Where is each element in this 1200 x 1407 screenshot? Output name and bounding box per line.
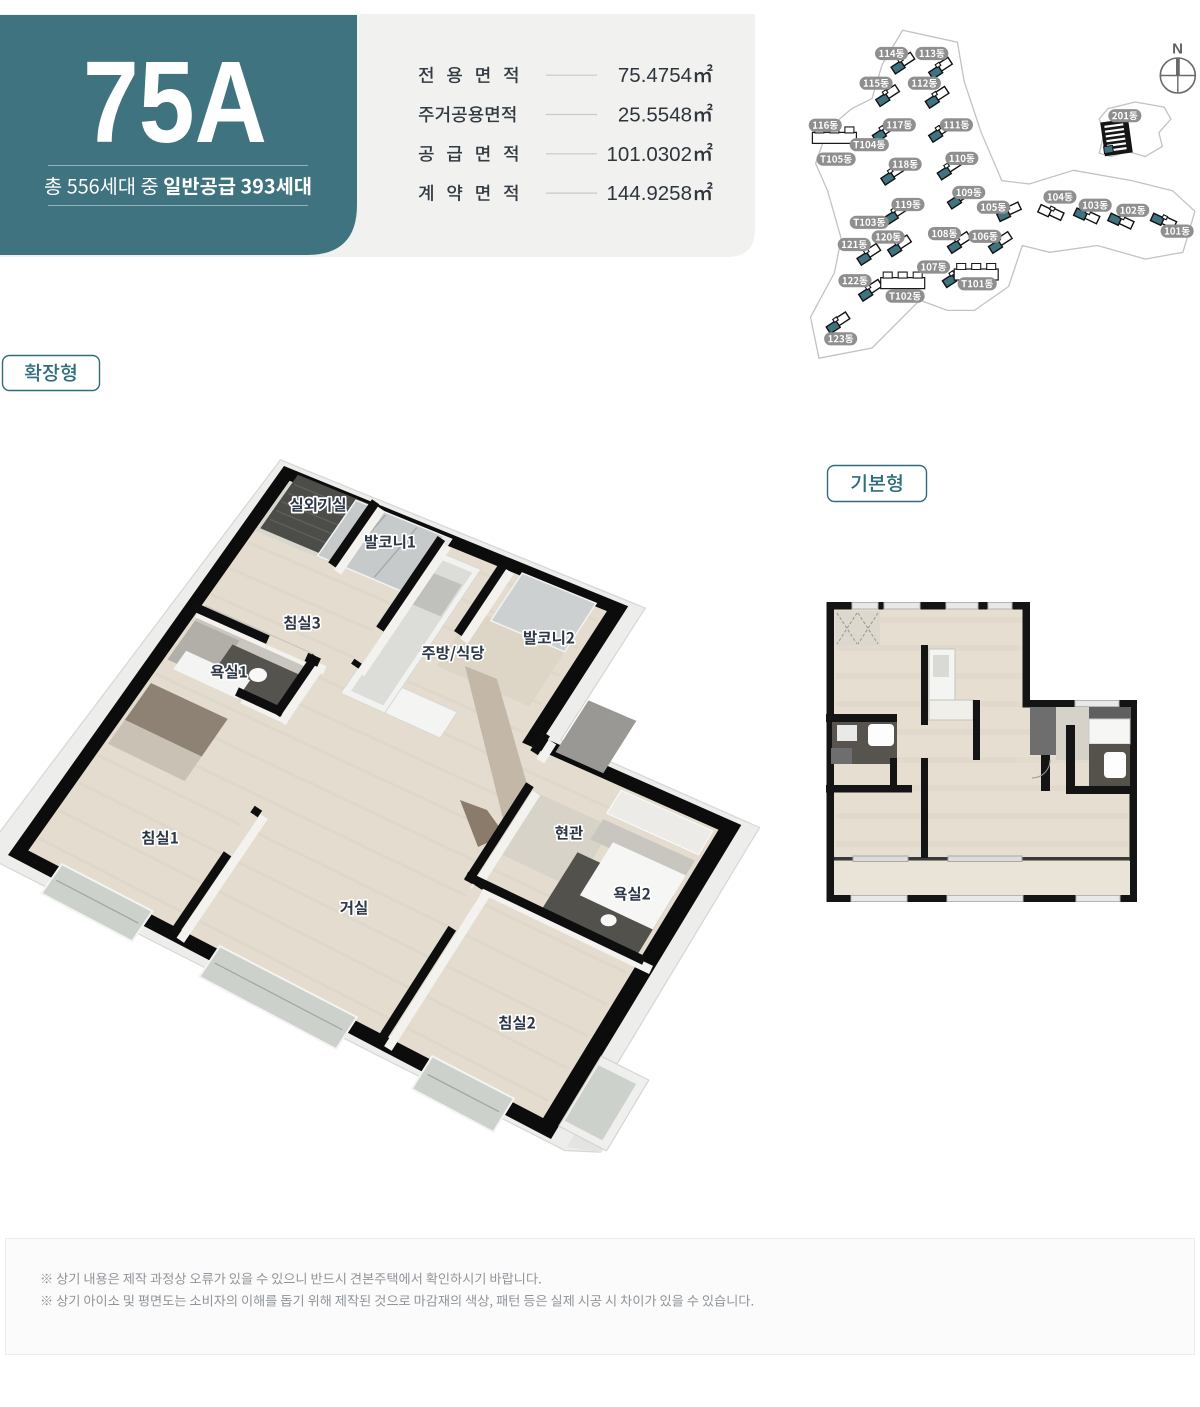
svg-text:75.4754: 75.4754 bbox=[618, 64, 692, 87]
svg-text:25.5548: 25.5548 bbox=[618, 104, 692, 127]
svg-text:75A: 75A bbox=[83, 37, 267, 167]
svg-text:144.9258: 144.9258 bbox=[606, 182, 692, 205]
svg-text:N: N bbox=[1172, 41, 1183, 58]
svg-text:101.0302: 101.0302 bbox=[606, 143, 692, 166]
